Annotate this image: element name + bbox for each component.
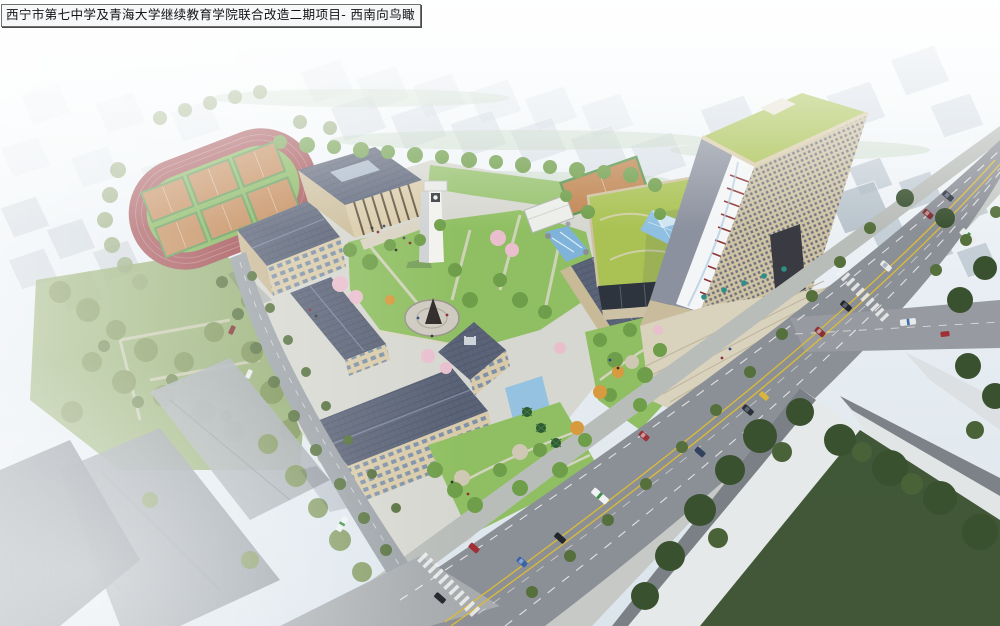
aerial-rendering: 西宁市第七中学及青海大学继续教育学院联合改造二期项目- 西南向鸟瞰 [0, 0, 1000, 626]
rendering-canvas [0, 0, 1000, 626]
title-label: 西宁市第七中学及青海大学继续教育学院联合改造二期项目- 西南向鸟瞰 [1, 4, 421, 27]
